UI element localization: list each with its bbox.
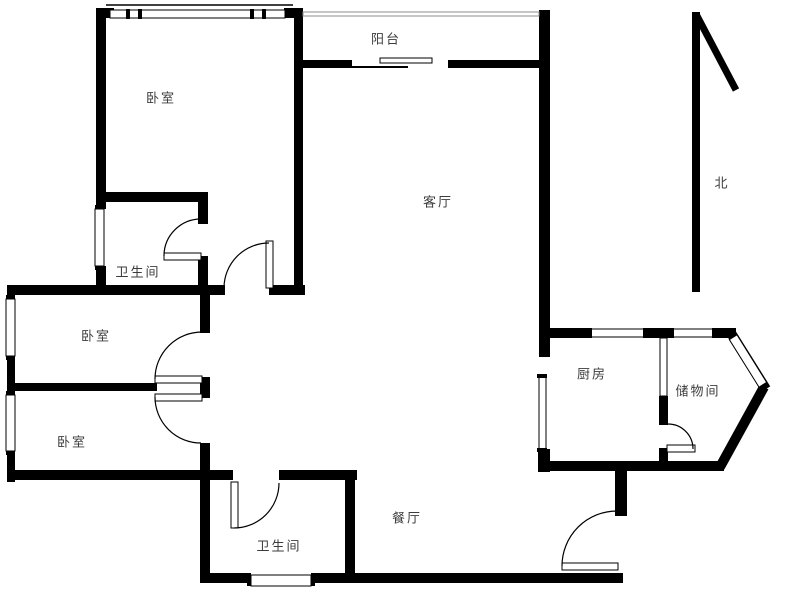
room-label-kitchen: 厨房 bbox=[577, 364, 607, 383]
door-leaf-bathroom-lower bbox=[231, 482, 238, 528]
doors bbox=[155, 219, 695, 570]
bathroom-lower-window bbox=[251, 575, 311, 586]
door-leaf-storage bbox=[667, 445, 695, 452]
room-label-bedroom-lower: 卧室 bbox=[57, 432, 87, 451]
north-label: 北 bbox=[714, 173, 727, 192]
floor-plan: 卧室 阳台 客厅 卫生间 卧室 卧室 卫生间 餐厅 厨房 储物间 北 bbox=[0, 0, 800, 600]
storage-window bbox=[672, 329, 714, 337]
bedroom-middle-window bbox=[6, 299, 15, 356]
balcony-sliding-door bbox=[380, 58, 432, 63]
door-leaf-living bbox=[266, 241, 273, 288]
room-label-living-room: 客厅 bbox=[423, 192, 453, 211]
door-arc-living bbox=[224, 243, 269, 288]
door-arc-bedroom-lower bbox=[155, 397, 201, 443]
kitchen-pass-window bbox=[539, 377, 546, 449]
door-arc-entry bbox=[562, 511, 617, 566]
kitchen-storage-glass bbox=[660, 338, 667, 396]
door-leaf-bathroom-upper bbox=[164, 253, 201, 260]
room-label-storage-room: 储物间 bbox=[675, 381, 720, 400]
door-leaf-entry bbox=[562, 563, 618, 570]
walls bbox=[7, 8, 766, 583]
room-label-bedroom-middle: 卧室 bbox=[81, 326, 111, 345]
room-label-bathroom-upper: 卫生间 bbox=[115, 262, 160, 281]
bedroom-lower-window bbox=[6, 395, 15, 451]
bathroom-upper-window bbox=[95, 209, 104, 266]
room-label-balcony: 阳台 bbox=[371, 29, 401, 48]
door-arc-bathroom-lower bbox=[234, 483, 279, 528]
room-label-bathroom-lower: 卫生间 bbox=[256, 536, 301, 555]
storage-bay-window bbox=[729, 335, 766, 387]
kitchen-window bbox=[590, 329, 645, 337]
room-label-bedroom-top: 卧室 bbox=[146, 88, 176, 107]
north-arrow-icon bbox=[692, 12, 736, 292]
balcony-railing bbox=[303, 12, 539, 16]
bedroom-top-window bbox=[110, 10, 285, 18]
door-arc-bathroom-upper bbox=[164, 219, 201, 256]
room-label-dining-room: 餐厅 bbox=[392, 508, 422, 527]
door-leaf-bedroom-middle bbox=[155, 376, 202, 383]
door-arc-bedroom-middle bbox=[155, 332, 202, 379]
door-leaf-bedroom-lower bbox=[155, 394, 202, 401]
windows bbox=[6, 5, 767, 586]
